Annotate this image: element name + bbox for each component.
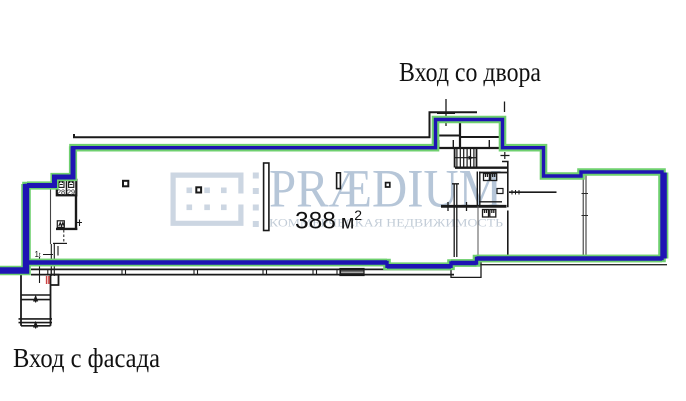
svg-text:29: 29 <box>67 188 75 197</box>
svg-text:Вход со двора: Вход со двора <box>399 57 541 87</box>
svg-text:Вход с фасада: Вход с фасада <box>13 343 160 373</box>
svg-text:388м2: 388м2 <box>295 207 362 235</box>
